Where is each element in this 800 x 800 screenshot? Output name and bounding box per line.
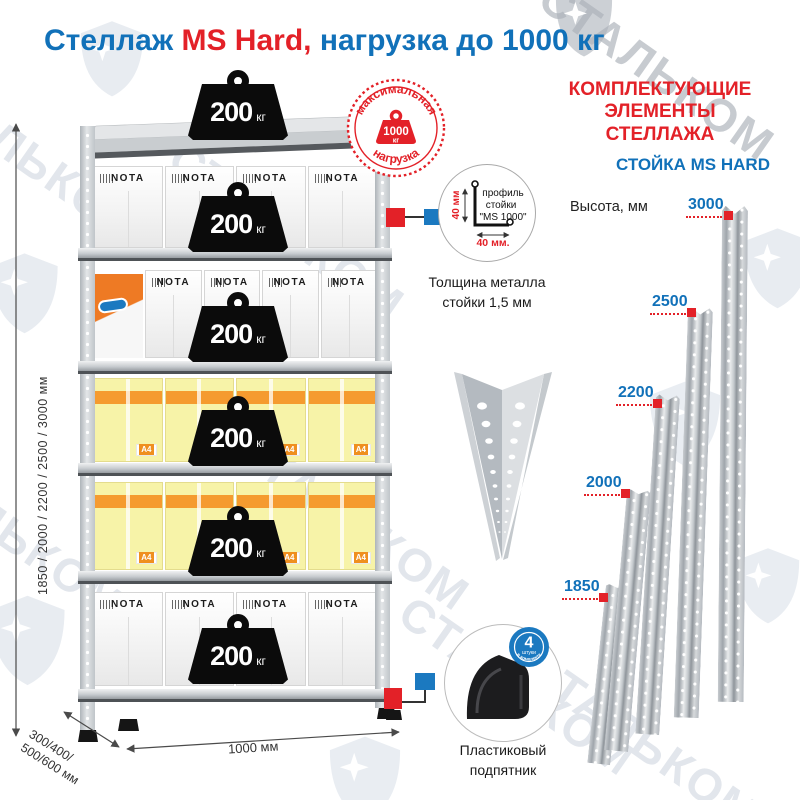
shelf-load-weight: 200кг <box>188 306 288 362</box>
profile-caption: Толщина металла стойки 1,5 мм <box>427 272 547 313</box>
weight-unit: кг <box>256 222 266 236</box>
weight-value: 200 <box>210 97 252 128</box>
max-load-stamp: максимальная нагрузка 1000 кг <box>346 78 446 178</box>
weight-value: 200 <box>210 423 252 454</box>
stamp-unit: кг <box>393 138 400 145</box>
title-part1: Стеллаж <box>44 24 181 57</box>
post-height-label-1850: 1850 <box>564 578 600 596</box>
leader-line <box>584 494 620 496</box>
quantity-badge: 4 штуки в комплекте <box>508 626 550 668</box>
post-profile-diagram: 40 мм 40 мм. профиль стойки "MS 1000" <box>437 163 537 263</box>
rack-height-dimension-label: 1850 / 2000 / 2200 / 2500 / 3000 мм <box>36 295 50 595</box>
plastic-foot <box>118 719 139 731</box>
profile-caption-line1: Толщина металла <box>427 272 547 292</box>
leader-line <box>650 313 686 315</box>
shelf-load-weight: 200кг <box>188 628 288 684</box>
stamp-weight-ring <box>392 112 401 121</box>
badge-count: 4 <box>525 635 534 652</box>
components-header-line1: КОМПЛЕКТУЮЩИЕ <box>550 79 770 101</box>
leader-marker <box>653 399 662 408</box>
post-height-label-2000: 2000 <box>586 474 622 492</box>
leader-marker <box>687 308 696 317</box>
leader-line <box>686 216 722 218</box>
shelf-beam <box>78 361 392 374</box>
profile-caption-line2: стойки 1,5 мм <box>427 292 547 312</box>
weight-unit: кг <box>256 654 266 668</box>
post-height-label-2200: 2200 <box>618 384 654 402</box>
foot-caption-line1: Пластиковый <box>438 740 568 760</box>
rack-post-right <box>375 118 390 708</box>
weight-unit: кг <box>256 110 266 124</box>
height-caption: Высота, мм <box>570 199 648 215</box>
profile-dim-horizontal: 40 мм. <box>476 237 509 249</box>
components-header: КОМПЛЕКТУЮЩИЕ ЭЛЕМЕНТЫ СТЕЛЛАЖА <box>550 79 770 146</box>
weight-unit: кг <box>256 436 266 450</box>
stamp-value: 1000 <box>383 126 409 138</box>
weight-value: 200 <box>210 641 252 672</box>
leader-marker <box>599 593 608 602</box>
profile-text-line2: стойки <box>486 200 517 211</box>
weight-value: 200 <box>210 209 252 240</box>
weight-unit: кг <box>256 546 266 560</box>
product-infographic: СТАЛЬКОМ СТАЛЬКОМ СТАЛЬКОМ СТАЛЬКОМ СТАЛ… <box>0 0 800 800</box>
callout-line <box>404 216 426 218</box>
components-header-line2: ЭЛЕМЕНТЫ СТЕЛЛАЖА <box>550 101 770 146</box>
plastic-foot-caption: Пластиковый подпятник <box>438 740 568 781</box>
callout-marker-red <box>384 688 402 709</box>
profile-text-line3: "MS 1000" <box>479 212 527 223</box>
components-subheader: СТОЙКА MS HARD <box>583 155 800 175</box>
shelf-beam <box>78 689 392 702</box>
title-part3: нагрузка до 1000 кг <box>311 24 604 57</box>
weight-value: 200 <box>210 533 252 564</box>
rack-width-dimension-label: 1000 мм <box>228 738 279 756</box>
foot-caption-line2: подпятник <box>438 760 568 780</box>
shelf-load-weight: 200кг <box>188 84 288 140</box>
shelf-load-weight: 200кг <box>188 196 288 252</box>
weight-value: 200 <box>210 319 252 350</box>
shelf-load-weight: 200кг <box>188 520 288 576</box>
title-part2: MS Hard, <box>181 24 311 57</box>
weight-unit: кг <box>256 332 266 346</box>
profile-text-line1: профиль <box>482 187 523 199</box>
plastic-foot <box>78 730 98 742</box>
profile-dim-vertical: 40 мм <box>451 191 462 220</box>
callout-marker-red <box>386 208 405 227</box>
badge-unit: штуки <box>522 650 536 656</box>
page-title: Стеллаж MS Hard, нагрузка до 1000 кг <box>44 24 605 58</box>
leader-marker <box>621 489 630 498</box>
plastic-foot <box>386 710 402 720</box>
leader-line <box>562 598 598 600</box>
post-height-label-3000: 3000 <box>688 196 724 214</box>
shelf-load-weight: 200кг <box>188 410 288 466</box>
leader-marker <box>724 211 733 220</box>
post-height-label-2500: 2500 <box>652 293 688 311</box>
rack-post-left <box>80 126 95 730</box>
callout-marker-blue <box>415 673 435 690</box>
callout-line <box>401 701 426 703</box>
leader-line <box>616 404 652 406</box>
corner-post-image <box>448 362 558 572</box>
